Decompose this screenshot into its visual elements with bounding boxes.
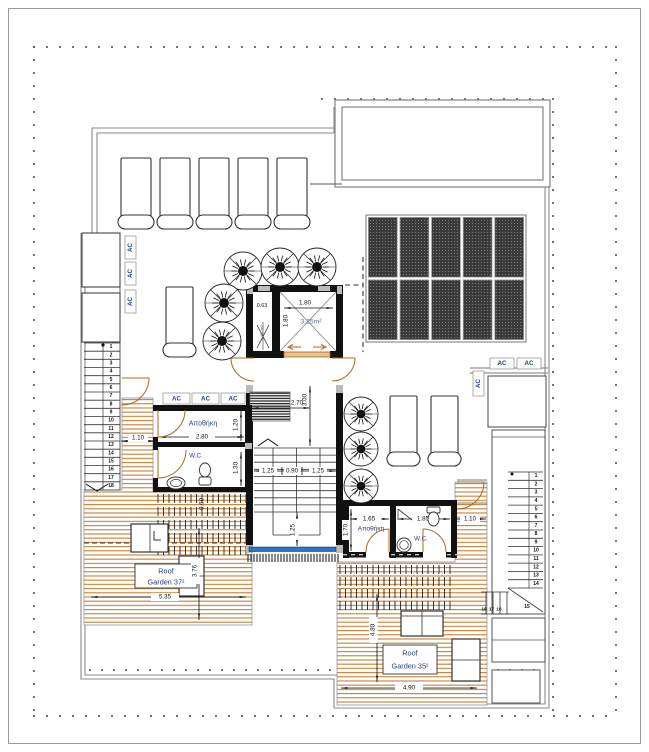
boundary-dot — [552, 449, 554, 451]
stair-number: 7 — [535, 523, 538, 529]
boundary-dot — [33, 124, 35, 126]
elevator-depth-dim: 1.80 — [283, 314, 290, 327]
boundary-dot — [33, 72, 35, 74]
boundary-dot — [488, 46, 490, 48]
boundary-dot — [553, 715, 555, 717]
boundary-dot — [33, 696, 35, 698]
boundary-dot — [615, 202, 617, 204]
sun-lounger — [431, 396, 458, 454]
wc-right-label: W.C. — [414, 536, 428, 543]
sun-lounger — [160, 158, 190, 218]
stair-number: 3 — [110, 360, 113, 366]
boundary-dot — [615, 670, 617, 672]
stair-number: 15 — [108, 458, 114, 464]
boundary-dot — [615, 46, 617, 48]
boundary-dot — [566, 46, 568, 48]
boundary-dot — [552, 397, 554, 399]
boundary-dot — [579, 715, 581, 717]
boundary-dot — [254, 715, 256, 717]
boundary-dot — [281, 669, 283, 671]
boundary-dot — [332, 715, 334, 717]
right-garden-label: Garden 35² — [392, 662, 429, 671]
boundary-dot — [462, 715, 464, 717]
boundary-dot — [124, 46, 126, 48]
stair-number: 18 — [108, 483, 114, 489]
boundary-dot — [615, 241, 617, 243]
boundary-dot — [33, 514, 35, 516]
boundary-dot — [345, 715, 347, 717]
boundary-dot — [615, 553, 617, 555]
boundary-dot — [615, 319, 617, 321]
boundary-dot — [552, 592, 554, 594]
boundary-dot — [33, 176, 35, 178]
boundary-dot — [33, 540, 35, 542]
boundary-dot — [615, 436, 617, 438]
stair-number: 10 — [533, 548, 539, 554]
boundary-dot — [615, 462, 617, 464]
boundary-dot — [615, 358, 617, 360]
boundary-dot — [215, 46, 217, 48]
shaft-width-dim: 0.63 — [257, 303, 268, 309]
boundary-dot — [189, 715, 191, 717]
boundary-dot — [579, 46, 581, 48]
wc-left-label: W.C. — [189, 453, 203, 460]
boundary-dot — [33, 475, 35, 477]
solar-panel — [495, 280, 524, 340]
elevator-core: 0.63 1.25 m² 1.80 1.80 3.25m² — [246, 285, 343, 358]
boundary-dot — [552, 163, 554, 165]
boundary-dot — [423, 46, 425, 48]
boundary-dot — [527, 715, 529, 717]
boundary-dot — [615, 514, 617, 516]
storage-right-depth-dim: 1.70 — [343, 523, 350, 536]
flight-dim: 1.25 — [312, 468, 325, 475]
boundary-dot — [150, 46, 152, 48]
boundary-dot — [615, 345, 617, 347]
boundary-dot — [33, 670, 35, 672]
boundary-dot — [33, 358, 35, 360]
sun-lounger-pillow — [274, 215, 310, 229]
floor-plan-drawing: 123456789101112131415161718 0.63 1.25 m²… — [0, 0, 649, 752]
boundary-dot — [384, 715, 386, 717]
boundary-dot — [615, 267, 617, 269]
boundary-dot — [615, 696, 617, 698]
stair-number: 1 — [535, 473, 538, 479]
boundary-dot — [33, 501, 35, 503]
boundary-dot — [552, 267, 554, 269]
boundary-dot — [552, 215, 554, 217]
boundary-dot — [615, 228, 617, 230]
boundary-dot — [33, 579, 35, 581]
boundary-dot — [72, 46, 74, 48]
boundary-dot — [475, 46, 477, 48]
boundary-dot — [615, 618, 617, 620]
boundary-dot — [552, 540, 554, 542]
boundary-dot — [280, 715, 282, 717]
boundary-dot — [33, 709, 35, 711]
sun-lounger — [121, 158, 151, 218]
solar-panel — [463, 217, 492, 277]
boundary-dot — [149, 669, 151, 671]
boundary-dot — [33, 345, 35, 347]
stair-number: 8 — [110, 401, 113, 407]
boundary-dot — [615, 592, 617, 594]
boundary-dot — [615, 280, 617, 282]
storage-left-depth-dim: 1.20 — [233, 418, 240, 431]
boundary-dot — [111, 46, 113, 48]
boundary-dot — [371, 46, 373, 48]
elevator-area-label: 3.25m² — [300, 319, 322, 326]
boundary-dot — [615, 293, 617, 295]
boundary-dot — [552, 124, 554, 126]
boundary-dot — [552, 683, 554, 685]
boundary-dot — [221, 669, 223, 671]
storage-right-label: Αποθήκη — [358, 526, 385, 533]
boundary-dot — [488, 715, 490, 717]
boundary-dot — [552, 553, 554, 555]
boundary-dot — [615, 605, 617, 607]
boundary-dot — [33, 150, 35, 152]
sun-lounger — [277, 158, 307, 218]
sun-lounger-pillow — [163, 343, 196, 357]
boundary-dot — [552, 527, 554, 529]
boundary-dot — [615, 59, 617, 61]
plant — [261, 248, 299, 286]
boundary-dot — [202, 715, 204, 717]
boundary-dot — [306, 715, 308, 717]
boundary-dot — [552, 150, 554, 152]
boundary-dot — [552, 137, 554, 139]
boundary-dot — [293, 715, 295, 717]
boundary-dot — [33, 267, 35, 269]
gap-dim: 0.90 — [286, 468, 299, 475]
boundary-dot — [615, 176, 617, 178]
boundary-dot — [33, 306, 35, 308]
boundary-dot — [202, 46, 204, 48]
boundary-dot — [329, 669, 331, 671]
wc-left-depth-dim: 1.30 — [233, 461, 240, 474]
boundary-dot — [33, 371, 35, 373]
boundary-dot — [33, 397, 35, 399]
solar-panel — [400, 217, 429, 277]
boundary-dot — [540, 715, 542, 717]
boundary-dot — [592, 46, 594, 48]
boundary-dot — [317, 669, 319, 671]
boundary-dot — [615, 163, 617, 165]
storage-left-label: Αποθήκη — [189, 421, 218, 428]
boundary-dot — [101, 669, 103, 671]
stair-number: 17 — [489, 607, 495, 613]
boundary-dot — [233, 669, 235, 671]
boundary-dot — [209, 669, 211, 671]
ac-equipment-unit — [250, 392, 290, 421]
boundary-dot — [85, 715, 87, 717]
solar-panel — [400, 280, 429, 340]
boundary-dot — [33, 59, 35, 61]
stair-number: 14 — [108, 450, 114, 456]
boundary-dot — [33, 46, 35, 48]
boundary-dot — [125, 669, 127, 671]
boundary-dot — [33, 553, 35, 555]
stair-number: 1 — [110, 344, 113, 350]
boundary-dot — [592, 715, 594, 717]
boundary-dot — [228, 715, 230, 717]
boundary-dot — [319, 715, 321, 717]
boundary-dot — [33, 228, 35, 230]
boundary-dot — [161, 669, 163, 671]
boundary-dot — [615, 423, 617, 425]
boundary-dot — [552, 475, 554, 477]
stair-number: 16 — [496, 607, 502, 613]
boundary-dot — [552, 241, 554, 243]
boundary-dot — [33, 657, 35, 659]
boundary-dot — [615, 111, 617, 113]
sun-lounger-pillow — [235, 215, 271, 229]
stair-number: 10 — [108, 418, 114, 424]
boundary-dot — [173, 669, 175, 671]
sun-lounger — [390, 396, 417, 454]
right-garden-depth-dim: 4.80 — [370, 623, 377, 636]
stair-number: 2 — [535, 481, 538, 487]
boundary-dot — [358, 46, 360, 48]
boundary-dot — [189, 46, 191, 48]
boundary-dot — [552, 111, 554, 113]
boundary-dot — [615, 150, 617, 152]
boundary-dot — [514, 46, 516, 48]
boundary-dot — [605, 46, 607, 48]
boundary-dot — [475, 715, 477, 717]
boundary-dot — [85, 46, 87, 48]
boundary-dot — [615, 189, 617, 191]
ac-label: AC — [229, 396, 238, 403]
boundary-dot — [33, 618, 35, 620]
ac-label: AC — [127, 297, 134, 306]
boundary-dot — [615, 540, 617, 542]
boundary-dot — [33, 410, 35, 412]
left-passage-dim: 1.10 — [132, 435, 145, 442]
shaft-area-label: 1.25 m² — [260, 324, 266, 341]
boundary-dot — [615, 332, 617, 334]
boundary-dot — [269, 669, 271, 671]
boundary-dot — [552, 384, 554, 386]
boundary-dot — [615, 475, 617, 477]
sun-lounger-pillow — [387, 452, 420, 466]
stair-number: 12 — [533, 564, 539, 570]
ac-label: AC — [127, 243, 134, 252]
solar-panel — [432, 280, 461, 340]
sun-lounger — [238, 158, 268, 218]
boundary-dot — [319, 46, 321, 48]
stair-number: 4 — [535, 498, 538, 504]
boundary-dot — [321, 98, 323, 100]
boundary-dot — [410, 715, 412, 717]
boundary-dot — [615, 215, 617, 217]
boundary-dot — [514, 715, 516, 717]
boundary-dot — [33, 644, 35, 646]
boundary-dot — [33, 163, 35, 165]
stair-number: 15 — [524, 604, 530, 610]
stair-number: 6 — [110, 385, 113, 391]
pergola-depth-dim: 0.60 — [199, 497, 206, 510]
boundary-dot — [615, 371, 617, 373]
boundary-dot — [527, 46, 529, 48]
boundary-dot — [124, 715, 126, 717]
stair-number: 8 — [535, 531, 538, 537]
stair-number: 2 — [110, 352, 113, 358]
boundary-dot — [397, 715, 399, 717]
stair-number: 16 — [108, 467, 114, 473]
boundary-dot — [267, 46, 269, 48]
stair-number: 17 — [108, 475, 114, 481]
boundary-dot — [33, 137, 35, 139]
boundary-dot — [540, 46, 542, 48]
solar-panel — [432, 217, 461, 277]
stair-number: 12 — [108, 434, 114, 440]
boundary-dot — [552, 189, 554, 191]
stair-number: 11 — [533, 556, 539, 562]
boundary-dot — [552, 631, 554, 633]
boundary-dot — [98, 46, 100, 48]
boundary-dot — [72, 715, 74, 717]
boundary-dot — [33, 85, 35, 87]
floor-plan-page: 123456789101112131415161718 0.63 1.25 m²… — [0, 0, 649, 752]
stair-start-dot — [511, 473, 514, 476]
boundary-dot — [615, 657, 617, 659]
boundary-dot — [615, 488, 617, 490]
boundary-dot — [185, 669, 187, 671]
boundary-dot — [33, 683, 35, 685]
left-garden-label: Garden 37² — [148, 578, 185, 587]
boundary-dot — [241, 46, 243, 48]
boundary-dot — [33, 280, 35, 282]
boundary-dot — [305, 669, 307, 671]
boundary-dot — [33, 319, 35, 321]
sun-lounger-pillow — [118, 215, 154, 229]
stair-number: 5 — [110, 377, 113, 383]
boundary-dot — [615, 306, 617, 308]
boundary-dot — [552, 670, 554, 672]
boundary-dot — [163, 715, 165, 717]
boundary-dot — [280, 46, 282, 48]
boundary-dot — [552, 202, 554, 204]
boundary-dot — [615, 254, 617, 256]
ac-label: AC — [172, 396, 181, 403]
boundary-dot — [33, 605, 35, 607]
boundary-dot — [552, 514, 554, 516]
table — [131, 524, 168, 552]
storage-left-width-dim: 2.80 — [196, 434, 209, 441]
storage-right-width-dim: 1.65 — [363, 516, 376, 523]
boundary-dot — [615, 501, 617, 503]
stair-number: 9 — [110, 409, 113, 415]
boundary-dot — [33, 631, 35, 633]
boundary-dot — [111, 715, 113, 717]
boundary-dot — [552, 501, 554, 503]
stair-number: 9 — [535, 539, 538, 545]
sun-lounger-pillow — [428, 452, 461, 466]
boundary-dot — [293, 46, 295, 48]
left-garden-depth-dim: 3.76 — [192, 564, 199, 577]
right-passage-dim: 1.10 — [464, 516, 477, 523]
boundary-dot — [306, 46, 308, 48]
boundary-dot — [501, 46, 503, 48]
upper-roof-block — [310, 100, 550, 187]
solar-panel — [495, 217, 524, 277]
boundary-dot — [197, 669, 199, 671]
sun-lounger-pillow — [157, 215, 193, 229]
boundary-dot — [615, 397, 617, 399]
boundary-dot — [113, 669, 115, 671]
boundary-dot — [615, 124, 617, 126]
boundary-dot — [267, 715, 269, 717]
boundary-dot — [552, 228, 554, 230]
boundary-dot — [371, 715, 373, 717]
boundary-dot — [615, 72, 617, 74]
boundary-dot — [163, 46, 165, 48]
boundary-dot — [552, 306, 554, 308]
boundary-dot — [33, 423, 35, 425]
boundary-dot — [552, 319, 554, 321]
ac-label: AC — [498, 360, 507, 367]
boundary-dot — [436, 46, 438, 48]
boundary-dot — [449, 715, 451, 717]
boundary-dot — [615, 579, 617, 581]
stair-number: 18 — [481, 607, 487, 613]
boundary-dot — [552, 98, 554, 100]
stair-number: 5 — [535, 506, 538, 512]
boundary-dot — [462, 46, 464, 48]
sun-lounger — [166, 287, 193, 345]
boundary-dot — [552, 488, 554, 490]
boundary-dot — [615, 98, 617, 100]
boundary-dot — [33, 488, 35, 490]
stair-number: 11 — [108, 426, 114, 432]
boundary-dot — [33, 449, 35, 451]
left-garden-width-dim: 5.35 — [159, 594, 172, 601]
boundary-dot — [33, 293, 35, 295]
elevator-width-dim: 1.80 — [299, 300, 312, 307]
boundary-dot — [215, 715, 217, 717]
plant — [205, 284, 243, 322]
ac-label: AC — [525, 360, 534, 367]
boundary-dot — [59, 715, 61, 717]
boundary-dot — [552, 423, 554, 425]
boundary-dot — [552, 566, 554, 568]
boundary-dot — [552, 358, 554, 360]
boundary-dot — [46, 46, 48, 48]
boundary-dot — [33, 98, 35, 100]
boundary-dot — [176, 46, 178, 48]
boundary-dot — [615, 384, 617, 386]
boundary-dot — [615, 644, 617, 646]
right-garden-label: Roof — [402, 649, 418, 658]
boundary-dot — [615, 85, 617, 87]
boundary-dot — [33, 384, 35, 386]
boundary-dot — [552, 709, 554, 711]
landing-dim: 1.25 — [290, 523, 297, 536]
boundary-dot — [436, 715, 438, 717]
boundary-dot — [257, 669, 259, 671]
stair-number: 4 — [110, 369, 113, 375]
boundary-dot — [552, 254, 554, 256]
boundary-dot — [615, 631, 617, 633]
plant — [203, 322, 241, 360]
boundary-dot — [615, 566, 617, 568]
boundary-dot — [552, 332, 554, 334]
left-ac-units: AC AC AC — [125, 236, 136, 313]
boundary-dot — [552, 345, 554, 347]
boundary-dot — [33, 254, 35, 256]
